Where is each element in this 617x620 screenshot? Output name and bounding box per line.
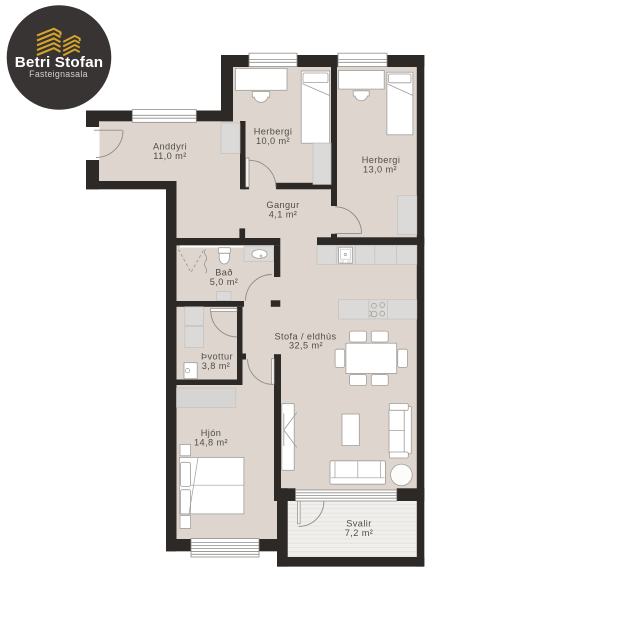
svg-text:11,0 m²: 11,0 m² (153, 151, 186, 161)
svg-text:13,0 m²: 13,0 m² (363, 164, 397, 174)
svg-text:Herbergi: Herbergi (362, 155, 401, 165)
svg-text:10,0 m²: 10,0 m² (256, 136, 290, 146)
svg-text:Hjón: Hjón (201, 428, 222, 438)
svg-text:32,5 m²: 32,5 m² (289, 340, 323, 350)
svg-text:Bað: Bað (215, 267, 233, 277)
svg-text:4,1 m²: 4,1 m² (269, 209, 298, 219)
svg-text:Svalir: Svalir (346, 518, 372, 528)
svg-text:14,8 m²: 14,8 m² (194, 437, 228, 447)
svg-text:7,2 m²: 7,2 m² (345, 528, 374, 538)
svg-text:Fasteignasala: Fasteignasala (29, 69, 88, 79)
svg-text:Herbergi: Herbergi (254, 127, 293, 137)
svg-text:5,0 m²: 5,0 m² (210, 277, 239, 287)
svg-text:3,8 m²: 3,8 m² (202, 361, 231, 371)
svg-text:Þvottur: Þvottur (201, 351, 233, 361)
svg-text:Anddyri: Anddyri (153, 141, 187, 151)
svg-text:Gangur: Gangur (266, 200, 299, 210)
